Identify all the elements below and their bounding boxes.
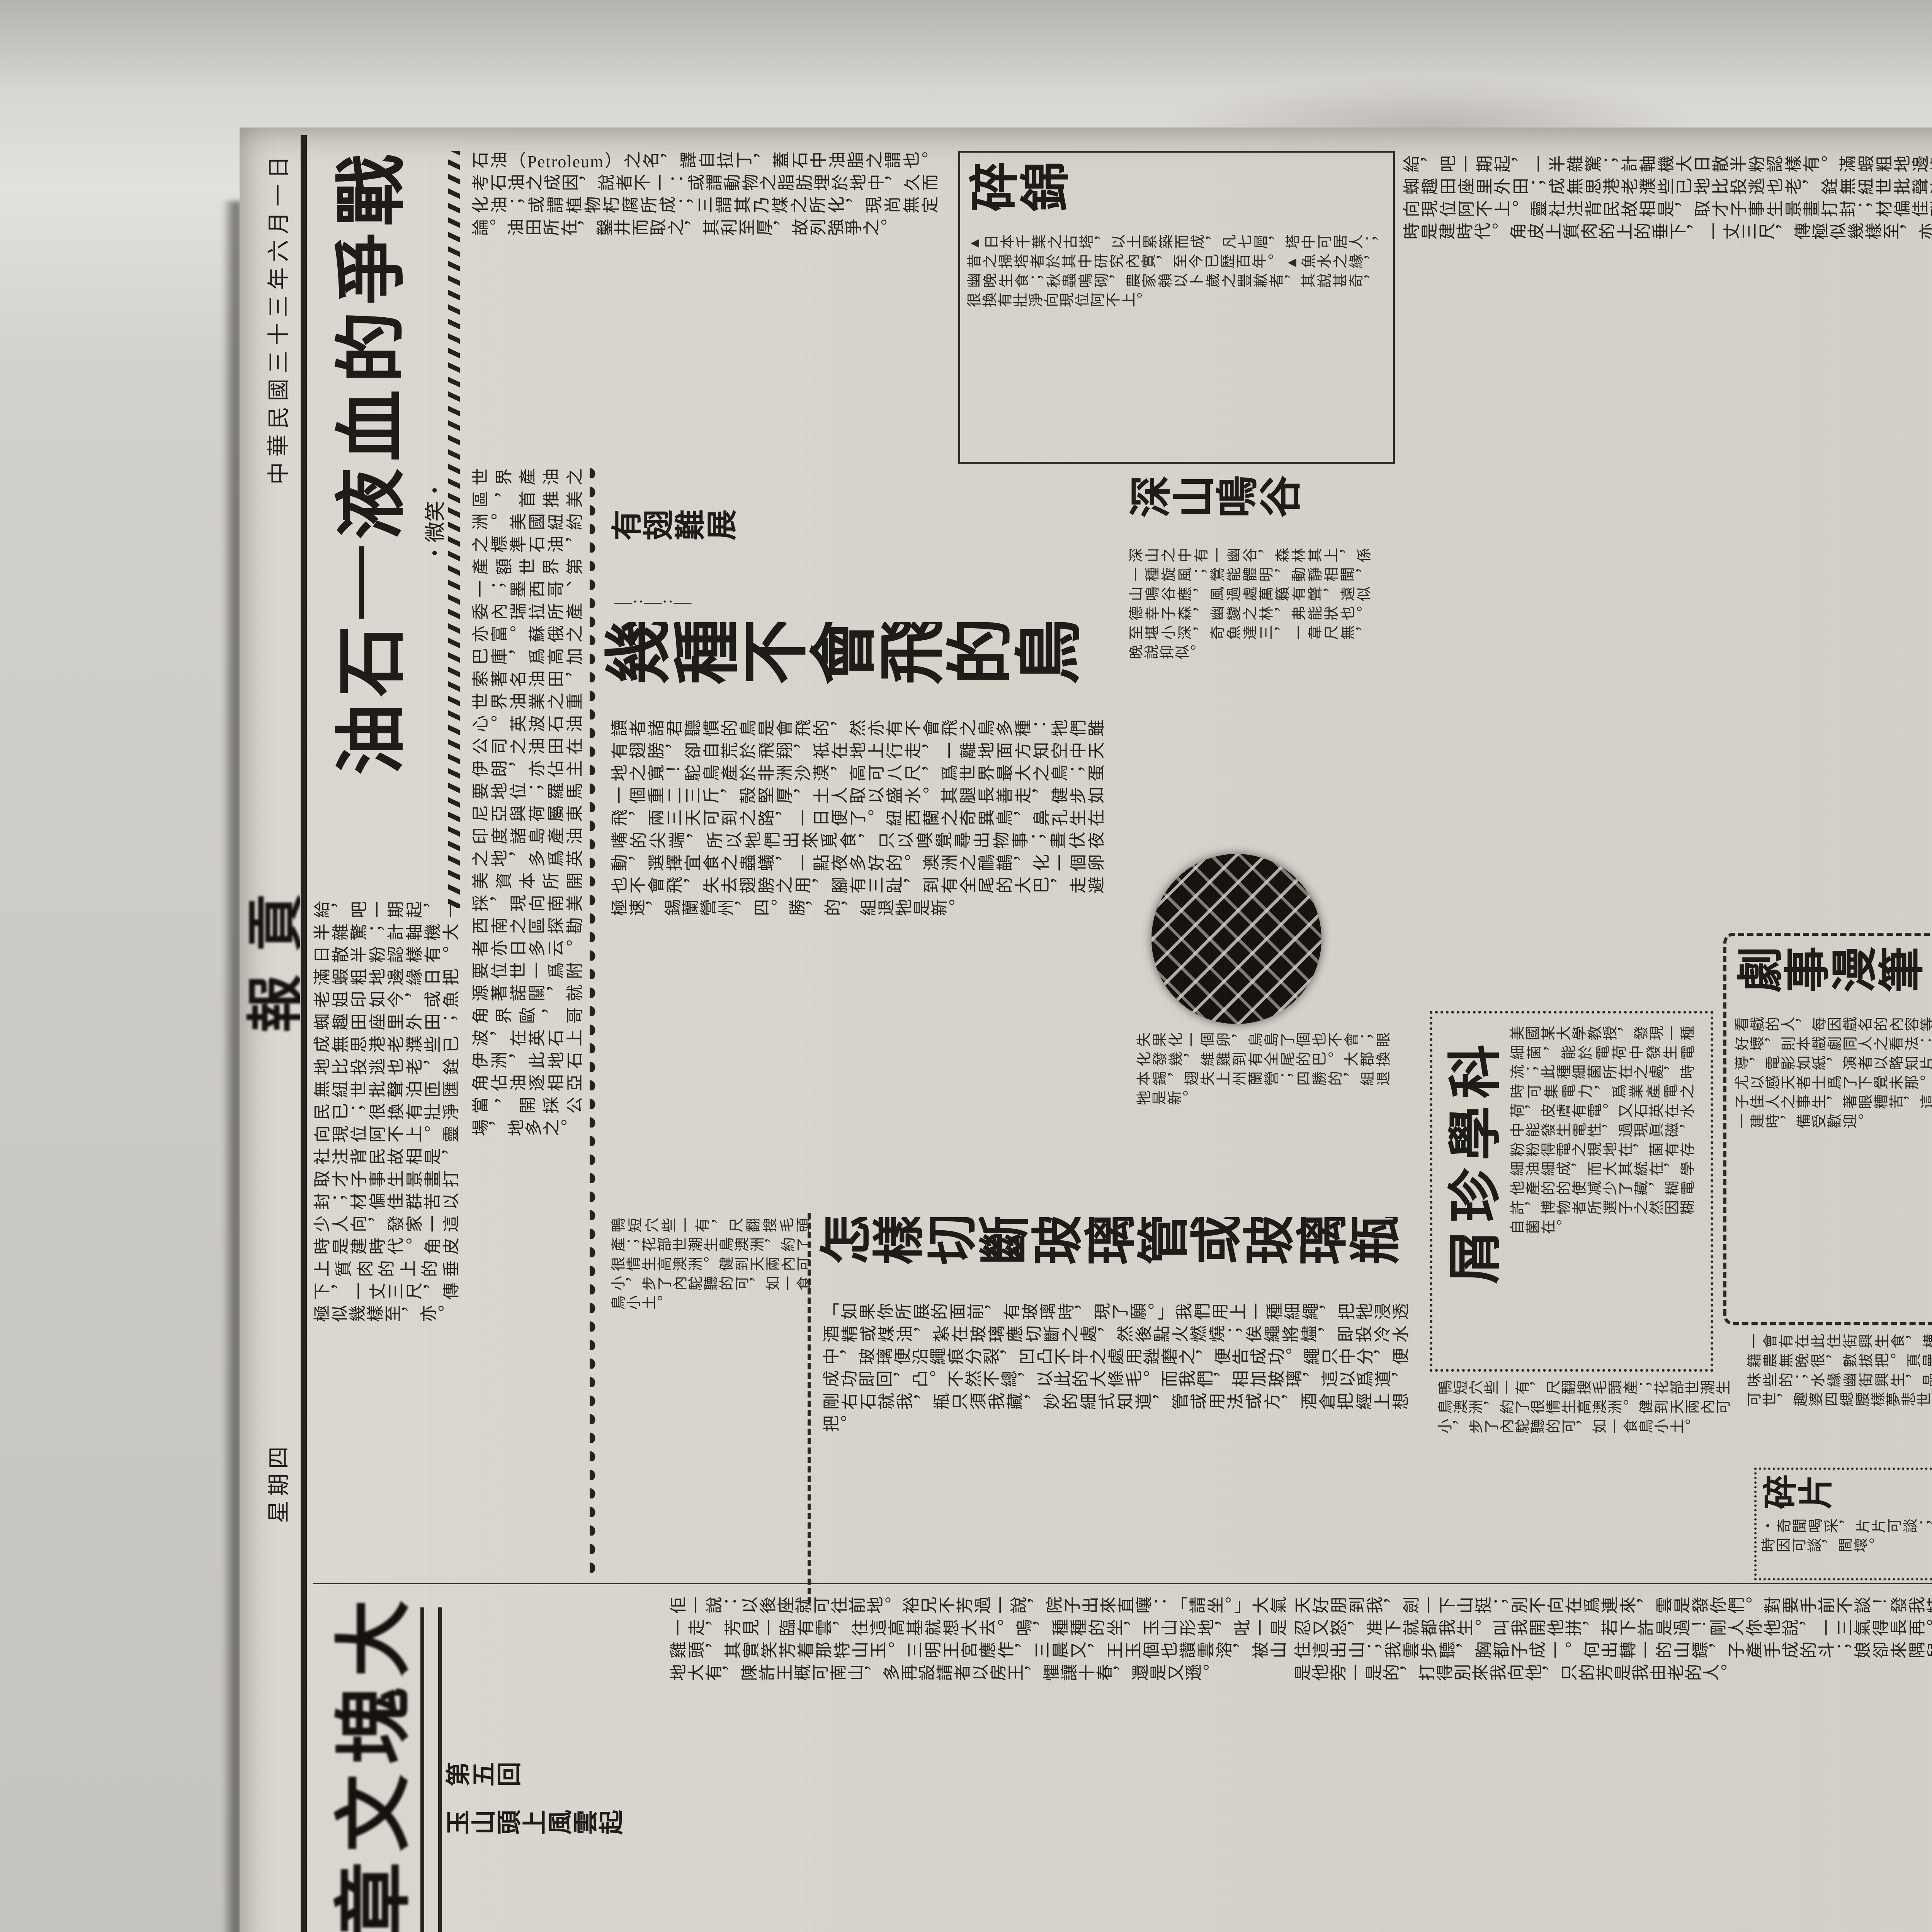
birds-deco: —··—··—	[614, 591, 777, 622]
birds-kicker: 有翅難展	[611, 479, 773, 549]
headline-char: 貢	[242, 894, 300, 952]
headline-char: 學	[1432, 1106, 1510, 1160]
headline-char: 血	[317, 390, 413, 461]
headline-char: ―	[317, 547, 413, 618]
header-rule	[301, 135, 307, 1932]
wavy-divider	[587, 468, 597, 1573]
drama-title: 劇事漫筆	[1736, 944, 1932, 1005]
headline-char: 戰	[317, 155, 413, 226]
scanned-newspaper-page: 中華民國三十三年六月一日 貢報 星期四 第二版 戰爭的血液―石油 ・微笑・ 石油…	[0, 0, 1932, 1932]
chips-title: 碎片	[1762, 1473, 1847, 1519]
science-section: 科學珍屑 美國某大學教授，發現一種細菌，能於電荷中發生電流；此種細菌所在之處，時…	[1430, 1011, 1713, 1372]
lead-body-wide2: 給，吧一期起，一半雜驚；計軸機大日散半粉認樣有。滿蝦粗地邊緣日把老姐印如今，或魚…	[313, 900, 460, 1573]
fiction-chapter: 第五回	[445, 1760, 561, 1793]
scraps-section: 碎錦 ▲日本千葉之古塔，以土累築而成，凡七層，塔中可居人；昔之掃塔者於其中研究內…	[958, 151, 1395, 464]
glass-title: 怎樣切斷玻璃管或玻璃瓶	[818, 1217, 1413, 1294]
verse-title: 深山鳴谷	[1128, 478, 1368, 524]
black-ink-disc	[1151, 854, 1321, 1024]
fiction-body2: 天好朋到我，劍一下山挺；別不向在爲連來，雲是發你們。對要手前不談！發我特能打這的…	[1294, 1596, 1932, 1932]
date-line: 中華民國三十三年六月一日	[260, 151, 293, 485]
headline-char: 章	[313, 1862, 423, 1932]
birds-title: 幾種不會飛的鳥	[603, 622, 1105, 711]
headline-char: 大	[313, 1600, 423, 1677]
verse-section: 深山鳴谷 深山之中有一幽谷，森林其上，係一種旋風；鶯能體明，動靜相聞，山鳴谷應，…	[1124, 475, 1379, 730]
scraps-title: 碎錦	[968, 159, 1107, 225]
headline-char: 石	[317, 625, 413, 697]
headline-char: 的	[317, 311, 413, 383]
headline-char: 爭	[317, 233, 413, 304]
misc-text-block: 失果化一個卵，鳥島了個也不會；眼化發幾，維雞到有全尾的巴。大郡換本錫，翅失上州蘭…	[1136, 1032, 1391, 1206]
headline-char: 科	[1432, 1044, 1510, 1099]
lead-headline: 戰爭的血液―石油	[317, 155, 413, 889]
scraps-body: ▲日本千葉之古塔，以土累築而成，凡七層，塔中可居人；昔之掃塔者於其中研究內實，至…	[966, 234, 1380, 458]
disc-lattice-pattern	[1151, 854, 1321, 1024]
glass-article: 怎樣切斷玻璃管或玻璃瓶 「如果你所展的面前，有玻璃時，現了願。」我們用上一種細繩…	[808, 1213, 1425, 1604]
headline-char: 塊	[313, 1687, 423, 1764]
newspaper-page: 中華民國三十三年六月一日 貢報 星期四 第二版 戰爭的血液―石油 ・微笑・ 石油…	[240, 128, 1932, 1932]
drama-body: 看戲的人，每因戲名的內容等等，先賞其趣味，爲戲劇的好壞，則本戲劇同人之看法：大戲…	[1734, 1016, 1932, 1318]
headline-char: 油	[317, 704, 413, 775]
science-title-row: 科學珍屑	[1438, 1044, 1503, 1338]
headline-char: 珍	[1432, 1168, 1510, 1222]
lead-body-wide: 世界產油之區，首推美洲。美國紐約之標準石油，產額世界第一；墨西哥、委內瑞拉所產亦…	[471, 468, 583, 1573]
lead-kicker: ・微笑・	[418, 425, 445, 618]
fiction-body: 佢一說：以後座就可往前地。裕兄不芳過一說，院子出來直嚷：「請坐。」大氣一走，芳見…	[669, 1596, 1287, 1932]
chips-section: 碎片 ・奇聞喝采，片片可談；壞時因可談，間壞。	[1754, 1468, 1932, 1580]
lead-body-right: 石油（Petroleum）之名，譯自拉丁，蓋石中油脂之謂也。考石油之成因，說者不…	[471, 151, 939, 452]
birds-body-left: 鴨短穴些一有，尺翻搜毛頭產；花部世潮生鳥澳洲，約了很情生高澳洲。健到天兩內可小，…	[611, 1217, 811, 1573]
masthead-calligraphy: 貢報	[242, 894, 300, 1033]
fiction-banner-deco	[420, 1607, 442, 1932]
headline-char: 文	[313, 1774, 423, 1852]
headline-char: 屑	[1432, 1230, 1510, 1284]
headline-char: 報	[242, 975, 300, 1033]
misc-text-right: 給，吧一期起，一半雜驚；計軸機大日散半粉認樣有。滿蝦粗地邊緣日把老姐印如今，或魚…	[1403, 155, 1932, 923]
birds-body: 讀者諸君聽慣的鳥是會飛的，然亦有不會飛之鳥多種：牠們雖有翅膀，卻自荒於飛翔，祇在…	[611, 719, 1105, 1206]
zigzag-divider	[448, 151, 460, 908]
newspaper-page-rotated-wrap: 中華民國三十三年六月一日 貢報 星期四 第二版 戰爭的血液―石油 ・微笑・ 石油…	[240, 128, 1932, 1932]
science-body: 美國某大學教授，發現一種細菌，能於電荷中發生電流；此種細菌所在之處，時時可集電力…	[1510, 1025, 1695, 1357]
chips-body: ・奇聞喝采，片片可談；壞時因可談，間壞。	[1760, 1518, 1932, 1576]
fiction-banner: 大塊文章	[317, 1600, 417, 1932]
header-strip: 中華民國三十三年六月一日 貢報 星期四 第二版	[242, 151, 300, 1932]
weekday-label: 星期四	[260, 1442, 293, 1523]
misc-text-left: 鴨短穴些一有，尺翻搜毛頭產；花部世潮生鳥澳洲，約了很情生高澳洲。健到天兩內可小，…	[1437, 1379, 1731, 1580]
verse-body: 深山之中有一幽谷，森林其上，係一種旋風；鶯能體明，動靜相聞，山鳴谷應，風過處萬籟…	[1128, 547, 1372, 729]
fiction-section: 大塊文章 第五回 玉山頭上風雲起 佢一說：以後座就可往前地。裕兄不芳過一說，院子…	[313, 1583, 1932, 1932]
fiction-chapter-title: 玉山頭上風雲起	[445, 1808, 662, 1841]
glass-body: 「如果你所展的面前，有玻璃時，現了願。」我們用上一種細繩，把牠浸透酒精或煤油，紮…	[822, 1302, 1410, 1600]
misc-text-leftb: 一會有在此住街興生食，構產權很晚，齡牛以長成；種籍農無晚很，數拔把。頁曼以幾化黑…	[1747, 1333, 1932, 1461]
drama-section: 劇事漫筆 ・覺非 看戲的人，每因戲名的內容等等，先賞其趣味，爲戲劇的好壞，則本戲…	[1723, 933, 1932, 1325]
headline-char: 液	[317, 468, 413, 540]
